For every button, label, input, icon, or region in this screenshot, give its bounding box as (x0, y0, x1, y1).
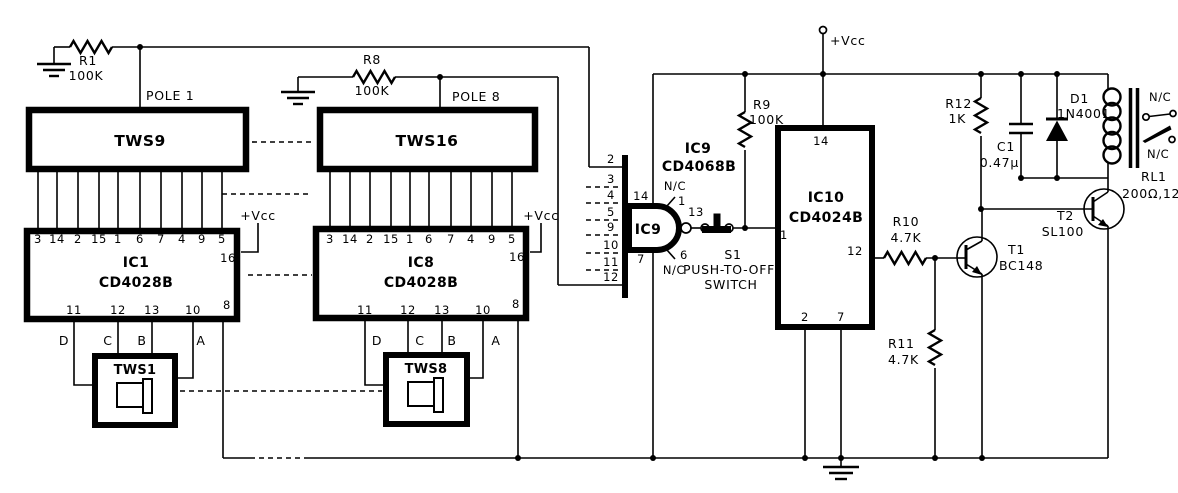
junction-dot (515, 455, 521, 461)
r8-ref: R8 (363, 52, 381, 67)
ic9-input-pin: 4 (607, 188, 615, 202)
ic9-pin7: 7 (637, 252, 645, 266)
d1-part: 1N4001 (1057, 106, 1110, 121)
r11-ref: R11 (888, 336, 915, 351)
r11-value: 4.7K (888, 352, 919, 367)
ic8-pin: 3 (326, 232, 334, 246)
ic8-pin: 9 (488, 232, 496, 246)
ic10-pin2: 2 (801, 310, 809, 324)
ic9-nc-bottom: N/C (663, 263, 685, 277)
relay-nc-top: N/C (1149, 90, 1171, 104)
ic1-pin: 3 (34, 232, 42, 246)
ic1-pin: 10 (185, 303, 201, 317)
ic10-part: CD4024B (789, 210, 863, 226)
junction-dot (1054, 175, 1060, 181)
ic1-pin: 2 (74, 232, 82, 246)
ic9-pin6: 6 (680, 248, 688, 262)
ic8-pin: 4 (467, 232, 475, 246)
ic8-pin: 1 (406, 232, 414, 246)
ic8-pin: 5 (508, 232, 516, 246)
t1-ref: T1 (1007, 242, 1025, 257)
switch-plunger (714, 214, 721, 227)
ic8-pin: 7 (447, 232, 455, 246)
ic10-pin12: 12 (847, 244, 863, 258)
thumbwheel-icon (408, 382, 434, 406)
bcd-label-d: D (59, 333, 69, 348)
thumbwheel-icon (117, 383, 143, 407)
c1-ref: C1 (997, 139, 1015, 154)
ic8-pin: 13 (434, 303, 450, 317)
ic8-pin: 11 (357, 303, 373, 317)
vcc-terminal (820, 27, 827, 34)
vcc-main-label: +Vcc (830, 33, 866, 48)
ic9-pin13: 13 (688, 205, 704, 219)
tws8-block: TWS8 (386, 355, 467, 424)
ic10-pin14: 14 (813, 134, 829, 148)
junction-dot (1018, 175, 1024, 181)
ic8-pin8: 8 (512, 297, 520, 311)
ic1-pin: 14 (49, 232, 65, 246)
ic8-block: 3 14 2 15 1 6 7 4 9 5 IC8 CD4028B 16 8 1… (316, 229, 526, 318)
ic9-part: CD4068B (662, 159, 736, 175)
ic9-nc-top: N/C (664, 179, 686, 193)
ic10-pin1: 1 (780, 228, 788, 242)
tws9-block: TWS9 (29, 110, 246, 169)
relay-nc-bottom: N/C (1147, 147, 1169, 161)
s1-caption-2: SWITCH (704, 277, 757, 292)
ic1-ref: IC1 (123, 255, 149, 271)
ic8-pin: 2 (366, 232, 374, 246)
tws1-block: TWS1 (95, 356, 175, 425)
ic10-pin7: 7 (837, 310, 845, 324)
r1-ref: R1 (79, 53, 97, 68)
r9-ref: R9 (753, 97, 771, 112)
relay-contact (1143, 114, 1149, 120)
relay-contact (1170, 111, 1176, 117)
bcd-label-b: B (447, 333, 456, 348)
ic8-pin: 10 (475, 303, 491, 317)
bcd-label-c: C (103, 333, 112, 348)
ic8-ref: IC8 (408, 255, 434, 271)
thumbwheel-icon (143, 379, 152, 413)
tws16-label: TWS16 (396, 132, 459, 150)
d1-ref: D1 (1070, 91, 1089, 106)
ic9-gate-label: IC9 (635, 222, 661, 238)
junction-dot (742, 71, 748, 77)
r9-value: 100K (749, 112, 784, 127)
ic9-pin14: 14 (633, 189, 649, 203)
bcd-label-c: C (415, 333, 424, 348)
tws9-label: TWS9 (114, 132, 166, 150)
r1-value: 100K (69, 68, 104, 83)
ic1-pin16: 16 (220, 251, 236, 265)
t1-part: BC148 (999, 258, 1043, 273)
s1-caption-1: PUSH-TO-OFF (683, 262, 775, 277)
vcc-label: +Vcc (240, 208, 276, 223)
r12-ref: R12 (945, 96, 972, 111)
ic1-pin: 7 (157, 232, 165, 246)
s1-ref: S1 (724, 247, 741, 262)
ic9-input-pin: 9 (607, 220, 615, 234)
switch-bar (702, 226, 731, 233)
ic1-pin: 12 (110, 303, 126, 317)
circuit-diagram: R1 100K POLE 1 TWS9 3 14 2 15 1 6 7 4 9 … (0, 0, 1178, 489)
ic9-input-pin: 12 (603, 270, 619, 284)
t2-ref: T2 (1056, 208, 1074, 223)
inverter-bubble (681, 223, 691, 233)
ic8-pin: 14 (342, 232, 358, 246)
r8-value: 100K (355, 83, 390, 98)
ic8-pin: 6 (425, 232, 433, 246)
tws1-label: TWS1 (114, 363, 157, 378)
pole1-label: POLE 1 (146, 88, 194, 103)
ic1-pin: 4 (178, 232, 186, 246)
ic1-pin: 9 (198, 232, 206, 246)
ic1-block: 3 14 2 15 1 6 7 4 9 5 IC1 CD4028B 16 8 1… (27, 231, 237, 319)
tws16-block: TWS16 (320, 110, 535, 169)
junction-dot (437, 74, 443, 80)
pole8-label: POLE 8 (452, 89, 500, 104)
vcc-label: +Vcc (523, 208, 559, 223)
ic8-pin: 12 (400, 303, 416, 317)
t2-part: SL100 (1042, 224, 1084, 239)
junction-dot (137, 44, 143, 50)
ic9-input-pin: 3 (607, 172, 615, 186)
relay-contact (1169, 137, 1175, 143)
ic9-pin1: 1 (678, 194, 686, 208)
ic8-pin: 15 (383, 232, 399, 246)
ic8-part: CD4028B (384, 275, 458, 291)
ic8-pin16: 16 (509, 250, 525, 264)
ic1-pin8: 8 (223, 298, 231, 312)
ic1-pin: 13 (144, 303, 160, 317)
c1-value: 0.47µ (980, 155, 1019, 170)
r12-value: 1K (948, 111, 966, 126)
ic9-input-pin: 5 (607, 205, 615, 219)
r10-ref: R10 (893, 214, 920, 229)
schematic-canvas: R1 100K POLE 1 TWS9 3 14 2 15 1 6 7 4 9 … (0, 0, 1178, 489)
r10-value: 4.7K (891, 230, 922, 245)
ic1-pin: 11 (66, 303, 82, 317)
ic9-input-pin: 11 (603, 255, 619, 269)
ic9-ref: IC9 (685, 141, 711, 157)
ic1-part: CD4028B (99, 275, 173, 291)
ic9-input-pin: 10 (603, 238, 619, 252)
ic9-input-pin: 2 (607, 152, 615, 166)
rl1-value: 200Ω,12V (1122, 186, 1178, 201)
ic1-pin: 6 (136, 232, 144, 246)
bcd-label-d: D (372, 333, 382, 348)
ic1-pin: 1 (114, 232, 122, 246)
thumbwheel-icon (434, 378, 443, 412)
bcd-label-a: A (196, 333, 205, 348)
bcd-label-a: A (491, 333, 500, 348)
ic1-pin: 15 (91, 232, 107, 246)
ic1-pin: 5 (218, 232, 226, 246)
bcd-label-b: B (137, 333, 146, 348)
rl1-ref: RL1 (1141, 169, 1167, 184)
ic10-ref: IC10 (808, 190, 845, 206)
tws8-label: TWS8 (405, 362, 448, 377)
